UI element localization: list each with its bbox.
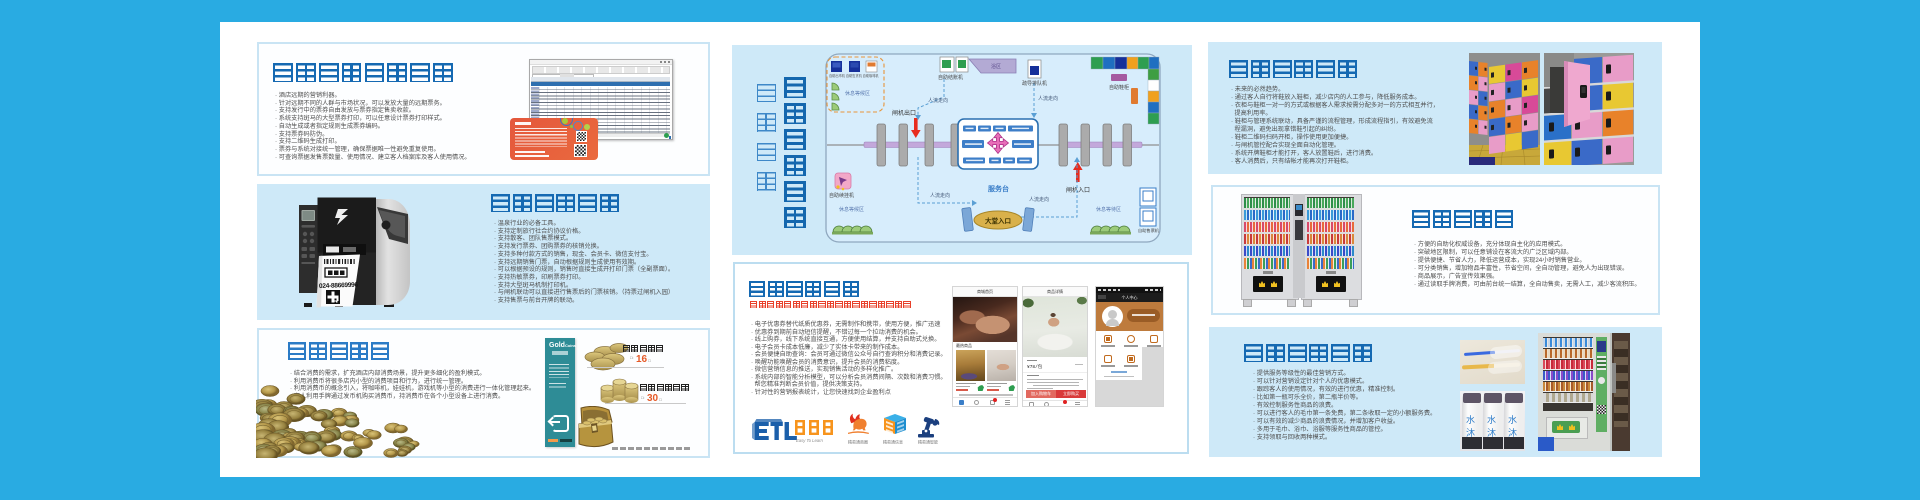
svg-text:闸机入口: 闸机入口 xyxy=(1066,186,1090,194)
svg-text:人流走向: 人流走向 xyxy=(928,97,948,104)
svg-text:精易通信息: 精易通信息 xyxy=(883,439,903,445)
svg-text:精易通智能: 精易通智能 xyxy=(918,439,938,445)
svg-text:大堂入口: 大堂入口 xyxy=(985,216,1011,225)
svg-text:自助结账机: 自助结账机 xyxy=(938,74,963,81)
svg-text:闸机出口: 闸机出口 xyxy=(892,109,916,117)
svg-text:024-88669996: 024-88669996 xyxy=(319,282,359,290)
svg-text:浴区: 浴区 xyxy=(991,63,1001,70)
svg-text:休息等待区: 休息等待区 xyxy=(1096,206,1121,213)
svg-text:精易通商圈: 精易通商圈 xyxy=(848,439,868,445)
svg-text:休息等候区: 休息等候区 xyxy=(839,206,864,213)
svg-text:Easy To Learn: Easy To Learn xyxy=(796,438,824,443)
svg-text:疏导排队机: 疏导排队机 xyxy=(1022,80,1047,87)
svg-text:自助鞋柜: 自助鞋柜 xyxy=(1109,84,1129,91)
svg-text:自助续挂机: 自助续挂机 xyxy=(829,192,854,199)
svg-text:服务台: 服务台 xyxy=(988,184,1009,193)
svg-text:休息等候区: 休息等候区 xyxy=(845,90,870,97)
svg-text:人流走向: 人流走向 xyxy=(930,192,950,199)
svg-text:自助出币机 自助售货机 自助咖啡机: 自助出币机 自助售货机 自助咖啡机 xyxy=(829,73,879,78)
svg-text:自助售票机: 自助售票机 xyxy=(1138,227,1160,234)
svg-text:人流走向: 人流走向 xyxy=(1029,196,1049,203)
svg-text:人流走向: 人流走向 xyxy=(1038,95,1058,102)
